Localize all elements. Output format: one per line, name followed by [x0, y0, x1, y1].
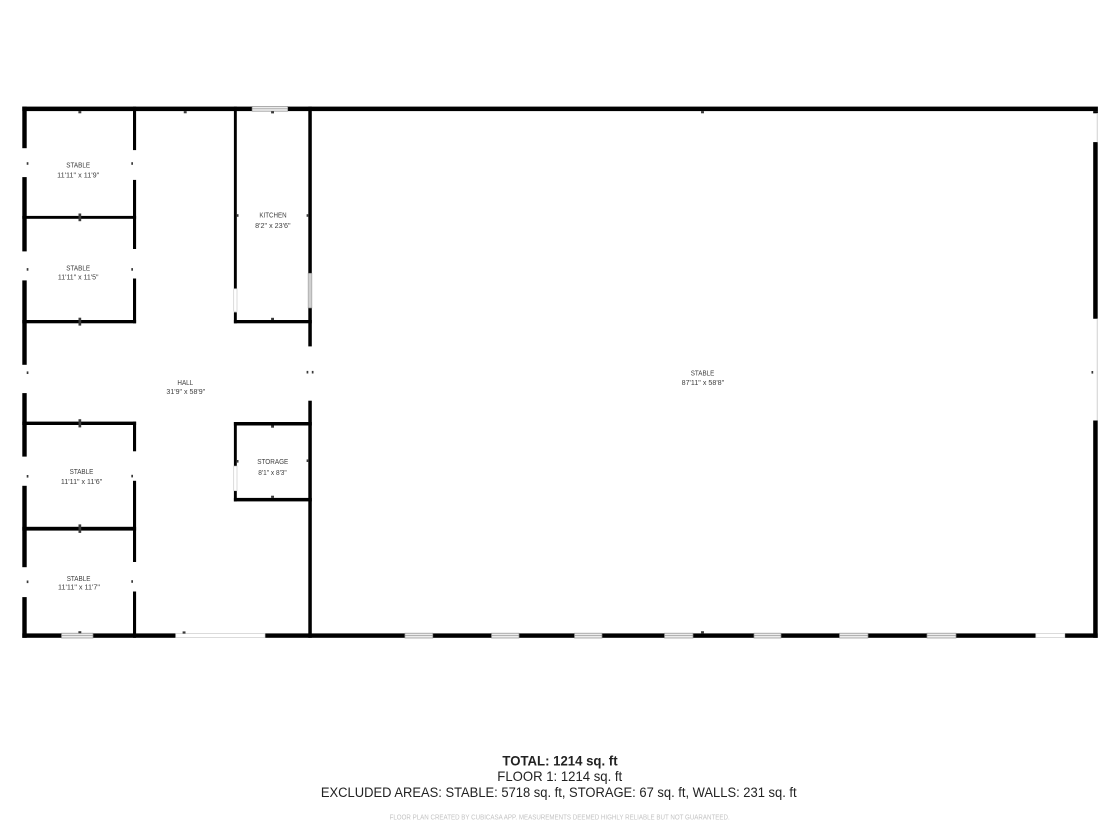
svg-text:FLOOR 1: 1214 sq. ft: FLOOR 1: 1214 sq. ft [497, 769, 622, 784]
svg-text:STABLE: STABLE [691, 371, 715, 378]
svg-text:STABLE: STABLE [66, 265, 90, 272]
svg-text:FLOOR PLAN CREATED BY CUBICASA: FLOOR PLAN CREATED BY CUBICASA APP. MEAS… [390, 814, 730, 821]
svg-text:11'11" x 11'6": 11'11" x 11'6" [61, 479, 103, 486]
svg-text:EXCLUDED AREAS: STABLE: 5718 s: EXCLUDED AREAS: STABLE: 5718 sq. ft, STO… [321, 785, 797, 801]
svg-text:KITCHEN: KITCHEN [259, 213, 286, 220]
svg-text:31'9" x 58'9": 31'9" x 58'9" [166, 389, 205, 396]
svg-text:STABLE: STABLE [66, 162, 90, 169]
svg-text:STABLE: STABLE [67, 576, 91, 583]
svg-text:STABLE: STABLE [70, 469, 94, 476]
svg-text:87'11" x 58'8": 87'11" x 58'8" [682, 380, 725, 387]
svg-text:8'2" x 23'6": 8'2" x 23'6" [255, 223, 291, 230]
svg-text:TOTAL: 1214 sq. ft: TOTAL: 1214 sq. ft [502, 753, 618, 768]
svg-text:11'11" x 11'9": 11'11" x 11'9" [57, 173, 100, 180]
svg-text:STORAGE: STORAGE [257, 459, 288, 466]
svg-text:11'11" x 11'7": 11'11" x 11'7" [58, 585, 101, 592]
svg-text:HALL: HALL [177, 380, 193, 387]
svg-text:8'1" x 8'3": 8'1" x 8'3" [258, 470, 287, 477]
svg-text:11'11" x 11'5": 11'11" x 11'5" [58, 274, 99, 281]
